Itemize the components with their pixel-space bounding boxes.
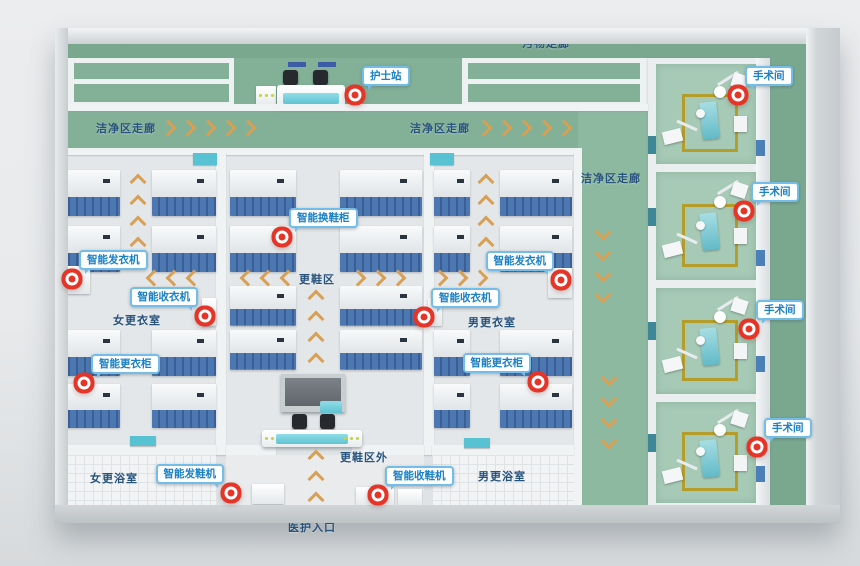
locker-row xyxy=(152,226,216,272)
equipment-cart xyxy=(730,410,749,428)
target-marker-icon[interactable] xyxy=(81,380,88,387)
chevron-icon xyxy=(308,471,325,488)
callout-bubble[interactable]: 智能发鞋机 xyxy=(156,464,225,484)
flow-arrows-up xyxy=(480,176,492,251)
callout-bubble[interactable]: 智能发衣机 xyxy=(79,250,148,270)
chevron-icon xyxy=(478,195,495,212)
surgical-lamp-icon xyxy=(696,109,705,118)
callout-bubble[interactable]: 护士站 xyxy=(362,66,410,86)
callout-bubble[interactable]: 智能收衣机 xyxy=(431,288,500,308)
target-marker-icon[interactable] xyxy=(421,314,428,321)
chevron-icon xyxy=(595,266,612,283)
operating-room xyxy=(656,288,756,394)
chevron-icon xyxy=(200,120,217,137)
equipment-cart xyxy=(662,241,684,258)
locker-row xyxy=(434,226,470,272)
chevron-icon xyxy=(186,270,203,287)
chevron-icon xyxy=(595,245,612,262)
flow-arrows-right xyxy=(352,272,404,284)
callout-bubble[interactable]: 智能收衣机 xyxy=(130,287,199,307)
chevron-icon xyxy=(601,370,618,387)
target-marker-icon[interactable] xyxy=(228,490,235,497)
chevron-icon xyxy=(452,270,469,287)
or-back-door xyxy=(756,250,765,266)
chevron-icon xyxy=(472,270,489,287)
chevron-icon xyxy=(240,270,257,287)
locker-row xyxy=(500,384,572,428)
shoe-cabinet-row xyxy=(340,286,422,326)
callout-bubble[interactable]: 手术间 xyxy=(756,300,804,320)
shoe-outside-label: 更鞋区外 xyxy=(340,449,388,465)
shoe-cabinet-row xyxy=(230,170,296,216)
chevron-icon xyxy=(476,120,493,137)
or-door xyxy=(648,434,656,452)
chevron-icon xyxy=(160,120,177,137)
chevron-icon xyxy=(166,270,183,287)
callout-bubble[interactable]: 手术间 xyxy=(764,418,812,438)
operating-room xyxy=(656,64,756,164)
flow-arrows-up xyxy=(132,176,144,251)
wall xyxy=(216,152,226,455)
equipment-cart xyxy=(734,343,747,359)
door xyxy=(193,153,217,165)
wall xyxy=(62,445,216,455)
chair xyxy=(320,414,335,429)
chevron-icon xyxy=(220,120,237,137)
wall-monitor xyxy=(288,62,306,67)
women-shower-label: 女更浴室 xyxy=(90,470,138,486)
target-marker-icon[interactable] xyxy=(352,92,359,99)
wall xyxy=(68,104,648,111)
upper-left-room-floor xyxy=(74,63,229,79)
chevron-icon xyxy=(595,287,612,304)
surgical-lamp-icon xyxy=(714,86,726,98)
callout-bubble[interactable]: 智能更衣柜 xyxy=(463,353,532,373)
or-door xyxy=(648,208,656,226)
chevron-icon xyxy=(280,270,297,287)
target-marker-icon[interactable] xyxy=(279,234,286,241)
wall xyxy=(432,445,574,455)
or-back-door xyxy=(756,140,765,156)
locker-row xyxy=(152,170,216,216)
chair xyxy=(313,70,328,85)
operating-room xyxy=(656,402,756,503)
or-door xyxy=(648,136,656,154)
surgical-lamp-icon xyxy=(696,336,705,345)
shoe-dispenser-machine xyxy=(252,484,284,504)
door xyxy=(130,436,156,446)
chevron-icon xyxy=(240,120,257,137)
flow-arrows-right xyxy=(478,122,570,134)
target-marker-icon[interactable] xyxy=(741,208,748,215)
chevron-icon xyxy=(390,270,407,287)
equipment-cart xyxy=(662,356,684,373)
chevron-icon xyxy=(595,224,612,241)
locker-row xyxy=(152,384,216,428)
callout-bubble[interactable]: 手术间 xyxy=(751,182,799,202)
men-locker-label: 男更衣室 xyxy=(468,314,516,330)
chevron-icon xyxy=(180,120,197,137)
chevron-icon xyxy=(478,174,495,191)
target-marker-icon[interactable] xyxy=(754,444,761,451)
chevron-icon xyxy=(146,270,163,287)
chevron-icon xyxy=(350,270,367,287)
or-back-door xyxy=(756,466,765,482)
chevron-icon xyxy=(536,120,553,137)
chevron-icon xyxy=(130,174,147,191)
equipment-cart xyxy=(730,297,749,315)
callout-bubble[interactable]: 智能发衣机 xyxy=(486,251,555,271)
chevron-icon xyxy=(601,391,618,408)
equipment-cart xyxy=(734,228,747,244)
clean-corridor-label: 洁净区走廊 xyxy=(410,120,470,136)
or-back-door xyxy=(756,356,765,372)
target-marker-icon[interactable] xyxy=(746,326,753,333)
upper-right-room-floor xyxy=(468,84,640,102)
dirty-corridor-floor xyxy=(68,44,806,58)
flow-arrows-up xyxy=(310,292,322,367)
chair xyxy=(283,70,298,85)
shoe-change-area-label: 更鞋区 xyxy=(299,271,335,287)
equipment-cart xyxy=(662,128,684,145)
shoe-cabinet-row xyxy=(230,330,296,370)
equipment-cart xyxy=(730,181,749,199)
men-shower-label: 男更浴室 xyxy=(478,468,526,484)
screen-panel xyxy=(320,401,342,413)
flow-arrows-left xyxy=(242,272,294,284)
desk-panel xyxy=(283,93,339,104)
equipment-cart xyxy=(734,116,747,132)
chevron-icon xyxy=(130,195,147,212)
chevron-icon xyxy=(370,270,387,287)
chevron-icon xyxy=(478,216,495,233)
flow-arrows-left xyxy=(148,272,200,284)
chevron-icon xyxy=(601,412,618,429)
chevron-icon xyxy=(260,270,277,287)
surgical-lamp-icon xyxy=(714,196,726,208)
surgical-lamp-icon xyxy=(696,221,705,230)
locker-row xyxy=(152,330,216,376)
indicator-lights xyxy=(344,437,359,440)
chevron-icon xyxy=(496,120,513,137)
door xyxy=(464,438,490,448)
flow-arrows-down xyxy=(603,372,615,447)
chevron-icon xyxy=(516,120,533,137)
chevron-icon xyxy=(308,450,325,467)
chevron-icon xyxy=(308,290,325,307)
chevron-icon xyxy=(308,353,325,370)
callout-bubble[interactable]: 智能收鞋机 xyxy=(385,466,454,486)
outer-wall-left xyxy=(55,28,68,523)
hospital-clean-area-floorplan: 污物走廊 洁净区走廊 洁净区走廊 洁净区走廊 更鞋区 女更衣室 男更衣室 女更浴… xyxy=(0,0,860,566)
locker-row xyxy=(434,384,470,428)
operating-room xyxy=(656,172,756,280)
callout-bubble[interactable]: 手术间 xyxy=(745,66,793,86)
equipment-cart xyxy=(734,455,747,471)
clean-corridor-label: 洁净区走廊 xyxy=(96,120,156,136)
indicator-lights xyxy=(259,94,274,97)
or-door xyxy=(648,322,656,340)
target-marker-icon[interactable] xyxy=(535,379,542,386)
operating-table xyxy=(699,440,720,479)
flow-arrows-up xyxy=(310,452,322,506)
chevron-icon xyxy=(308,311,325,328)
clean-corridor-label: 洁净区走廊 xyxy=(581,170,641,186)
women-locker-label: 女更衣室 xyxy=(113,312,161,328)
outer-wall-bottom xyxy=(55,505,840,523)
locker-row xyxy=(62,170,120,216)
shoe-cabinet-row xyxy=(230,286,296,326)
flow-arrows-down xyxy=(597,226,609,301)
target-marker-icon[interactable] xyxy=(69,276,76,283)
callout-bubble[interactable]: 智能换鞋柜 xyxy=(289,208,358,228)
shoe-cabinet-row xyxy=(340,330,422,370)
chevron-icon xyxy=(308,332,325,349)
desk-panel xyxy=(276,434,348,444)
chair xyxy=(292,414,307,429)
door xyxy=(430,153,454,165)
target-marker-icon[interactable] xyxy=(735,92,742,99)
target-marker-icon[interactable] xyxy=(202,313,209,320)
chevron-icon xyxy=(432,270,449,287)
callout-bubble[interactable]: 智能更衣柜 xyxy=(91,354,160,374)
chevron-icon xyxy=(556,120,573,137)
flow-arrows-right xyxy=(434,272,486,284)
wall xyxy=(574,152,582,505)
locker-row xyxy=(434,170,470,216)
target-marker-icon[interactable] xyxy=(558,277,565,284)
chevron-icon xyxy=(601,433,618,450)
upper-left-room-floor xyxy=(74,84,229,102)
locker-row xyxy=(500,170,572,216)
locker-row xyxy=(62,384,120,428)
upper-right-room-floor xyxy=(468,63,640,79)
shoe-cabinet-row xyxy=(340,226,422,272)
shoe-cabinet-row xyxy=(230,226,296,272)
shoe-change-desk xyxy=(262,430,362,447)
target-marker-icon[interactable] xyxy=(375,492,382,499)
outer-wall-right xyxy=(806,28,840,523)
equipment-cart xyxy=(662,467,684,484)
flow-arrows-right xyxy=(162,122,254,134)
wall xyxy=(62,148,582,155)
chevron-icon xyxy=(130,216,147,233)
outer-wall-top xyxy=(55,28,840,44)
wall-monitor xyxy=(318,62,336,67)
